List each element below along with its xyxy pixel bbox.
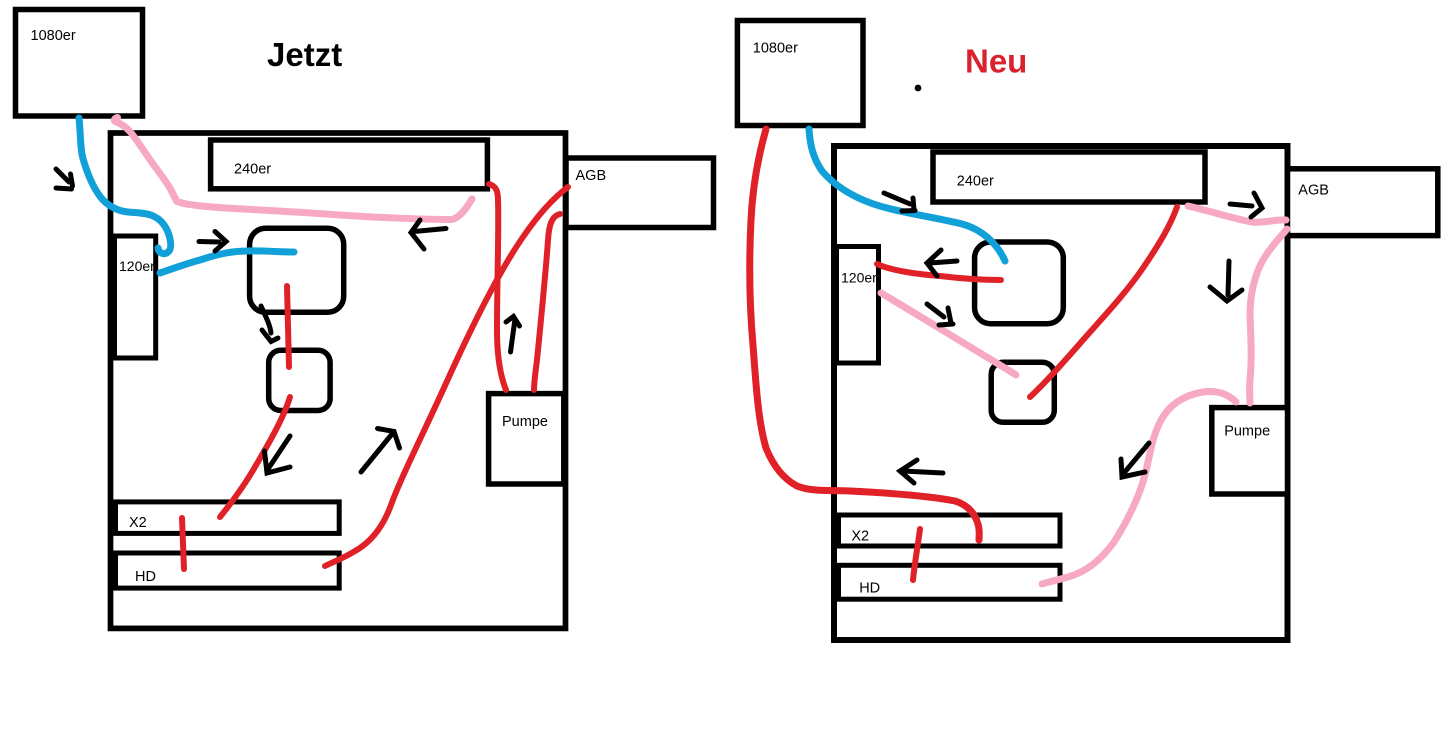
svg-text:1080er: 1080er: [31, 28, 76, 44]
svg-text:Pumpe: Pumpe: [1224, 424, 1270, 440]
svg-text:120er: 120er: [119, 258, 155, 274]
svg-text:AGB: AGB: [1298, 183, 1329, 199]
svg-text:HD: HD: [859, 581, 880, 597]
svg-text:HD: HD: [135, 569, 156, 585]
svg-text:AGB: AGB: [576, 168, 607, 184]
svg-text:Pumpe: Pumpe: [502, 414, 548, 430]
svg-text:X2: X2: [851, 529, 869, 545]
svg-text:240er: 240er: [234, 162, 271, 178]
svg-text:240er: 240er: [957, 174, 994, 190]
svg-text:Jetzt: Jetzt: [267, 36, 342, 73]
svg-text:1080er: 1080er: [753, 40, 798, 56]
svg-text:120er: 120er: [841, 270, 877, 286]
svg-text:Neu: Neu: [965, 43, 1027, 80]
svg-text:X2: X2: [129, 515, 147, 531]
